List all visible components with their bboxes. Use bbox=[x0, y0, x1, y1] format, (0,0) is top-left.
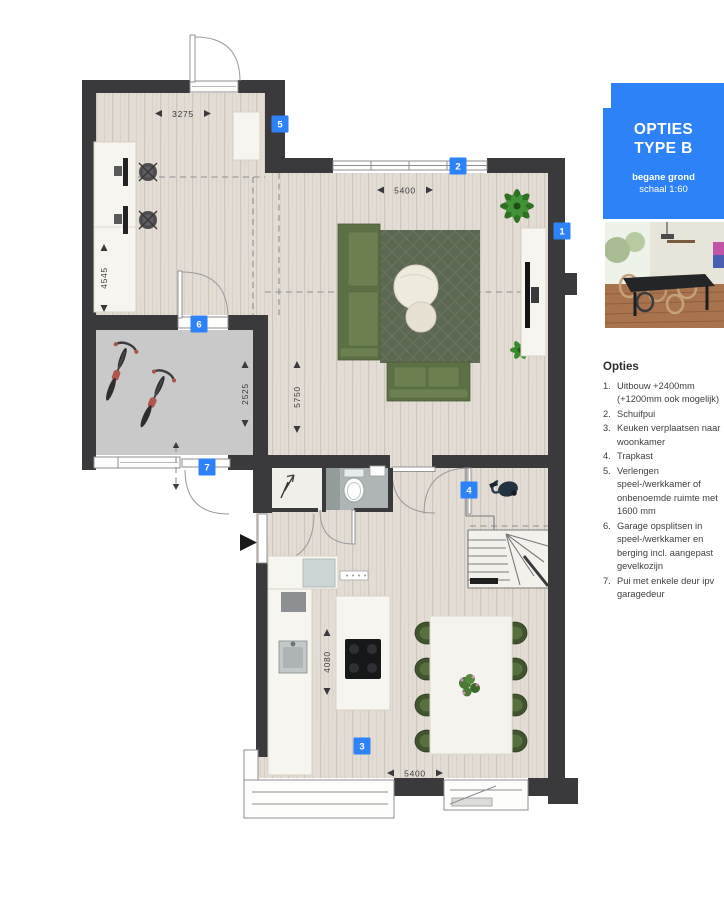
office-chair bbox=[139, 211, 157, 229]
badge-6: 6 bbox=[191, 316, 208, 333]
panel-title-line1: OPTIES bbox=[603, 120, 724, 139]
option-text: Verlengen speel-/werkkamer of onbenoemde… bbox=[617, 465, 721, 519]
toilet-sink bbox=[370, 466, 385, 476]
meterkast-floor bbox=[272, 468, 322, 510]
svg-text:4545: 4545 bbox=[99, 267, 109, 289]
badge-7: 7 bbox=[199, 459, 216, 476]
kitchen-counter bbox=[268, 589, 312, 775]
doormat bbox=[340, 571, 368, 580]
svg-text:1: 1 bbox=[559, 227, 565, 238]
badge-4: 4 bbox=[461, 482, 478, 499]
options-list: Opties 1. Uitbouw +2400mm (+1200mm ook m… bbox=[603, 361, 721, 602]
option-number: 6. bbox=[603, 520, 617, 574]
tv-cabinet bbox=[521, 228, 546, 356]
panel-title-line2: TYPE B bbox=[603, 139, 724, 158]
option-number: 3. bbox=[603, 422, 617, 449]
type-b-photo bbox=[605, 222, 724, 328]
sink bbox=[279, 641, 307, 673]
svg-text:5400: 5400 bbox=[404, 769, 426, 779]
svg-text:5: 5 bbox=[277, 120, 283, 131]
option-text: Garage opsplitsen in speel-/werkkamer en… bbox=[617, 520, 721, 574]
cooktop bbox=[345, 639, 381, 679]
svg-text:5750: 5750 bbox=[292, 386, 302, 408]
option-text: Trapkast bbox=[617, 450, 721, 463]
fridge bbox=[303, 559, 335, 587]
sofa bbox=[338, 224, 380, 360]
svg-text:5400: 5400 bbox=[394, 186, 416, 196]
floorplan: 3275 5400 4545 5750 2525 4080 bbox=[0, 0, 600, 860]
badge-3: 3 bbox=[354, 738, 371, 755]
option-item: 5. Verlengen speel-/werkkamer of onbenoe… bbox=[603, 465, 721, 519]
options-heading: Opties bbox=[603, 361, 721, 373]
svg-text:7: 7 bbox=[204, 463, 209, 474]
option-item: 3. Keuken verplaatsen naar woonkamer bbox=[603, 422, 721, 449]
svg-text:2525: 2525 bbox=[240, 383, 250, 405]
option-number: 2. bbox=[603, 408, 617, 421]
kitchen-island bbox=[336, 596, 390, 710]
option-number: 4. bbox=[603, 450, 617, 463]
badge-2: 2 bbox=[450, 158, 467, 175]
panel-subtitle-bold: begane grond bbox=[603, 172, 724, 184]
garage-floor bbox=[96, 330, 253, 455]
options-items: 1. Uitbouw +2400mm (+1200mm ook mogelijk… bbox=[603, 380, 721, 602]
option-text: Schuifpui bbox=[617, 408, 721, 421]
office-chair bbox=[139, 163, 157, 181]
plant bbox=[500, 189, 534, 223]
panel-subtitle: begane grond schaal 1:60 bbox=[603, 172, 724, 196]
toilet-door bbox=[352, 510, 355, 544]
option-text: Keuken verplaatsen naar woonkamer bbox=[617, 422, 721, 449]
panel-subtitle-scale: schaal 1:60 bbox=[603, 184, 724, 196]
option-item: 7. Pui met enkele deur ipv garagedeur bbox=[603, 575, 721, 602]
option-item: 2. Schuifpui bbox=[603, 408, 721, 421]
badge-5: 5 bbox=[272, 116, 289, 133]
panel-title: OPTIES TYPE B bbox=[603, 83, 724, 158]
option-number: 7. bbox=[603, 575, 617, 602]
stair-tread bbox=[470, 578, 498, 584]
option-item: 1. Uitbouw +2400mm (+1200mm ook mogelijk… bbox=[603, 380, 721, 407]
kitchen-window-right bbox=[444, 780, 528, 810]
sofa-chaise bbox=[387, 362, 470, 401]
svg-text:3275: 3275 bbox=[172, 109, 194, 119]
svg-text:3: 3 bbox=[359, 742, 364, 753]
study-door bbox=[190, 35, 240, 92]
badge-1: 1 bbox=[554, 223, 571, 240]
study-cabinet bbox=[233, 112, 260, 160]
option-number: 1. bbox=[603, 380, 617, 407]
option-item: 4. Trapkast bbox=[603, 450, 721, 463]
kitchen-appliance bbox=[281, 592, 306, 612]
dining-set bbox=[415, 616, 527, 754]
svg-text:4: 4 bbox=[466, 486, 472, 497]
tv bbox=[525, 262, 530, 328]
option-text: Uitbouw +2400mm (+1200mm ook mogelijk) bbox=[617, 380, 721, 407]
sidebar: OPTIES TYPE B begane grond schaal 1:60 bbox=[603, 83, 724, 603]
svg-text:2: 2 bbox=[455, 162, 460, 173]
option-text: Pui met enkele deur ipv garagedeur bbox=[617, 575, 721, 602]
tv-mount bbox=[531, 287, 539, 303]
type-panel: OPTIES TYPE B begane grond schaal 1:60 bbox=[603, 83, 724, 219]
svg-text:6: 6 bbox=[196, 320, 201, 331]
entrance-arrow-icon bbox=[240, 534, 257, 551]
option-item: 6. Garage opsplitsen in speel-/werkkamer… bbox=[603, 520, 721, 574]
svg-text:4080: 4080 bbox=[322, 651, 332, 673]
option-number: 5. bbox=[603, 465, 617, 519]
